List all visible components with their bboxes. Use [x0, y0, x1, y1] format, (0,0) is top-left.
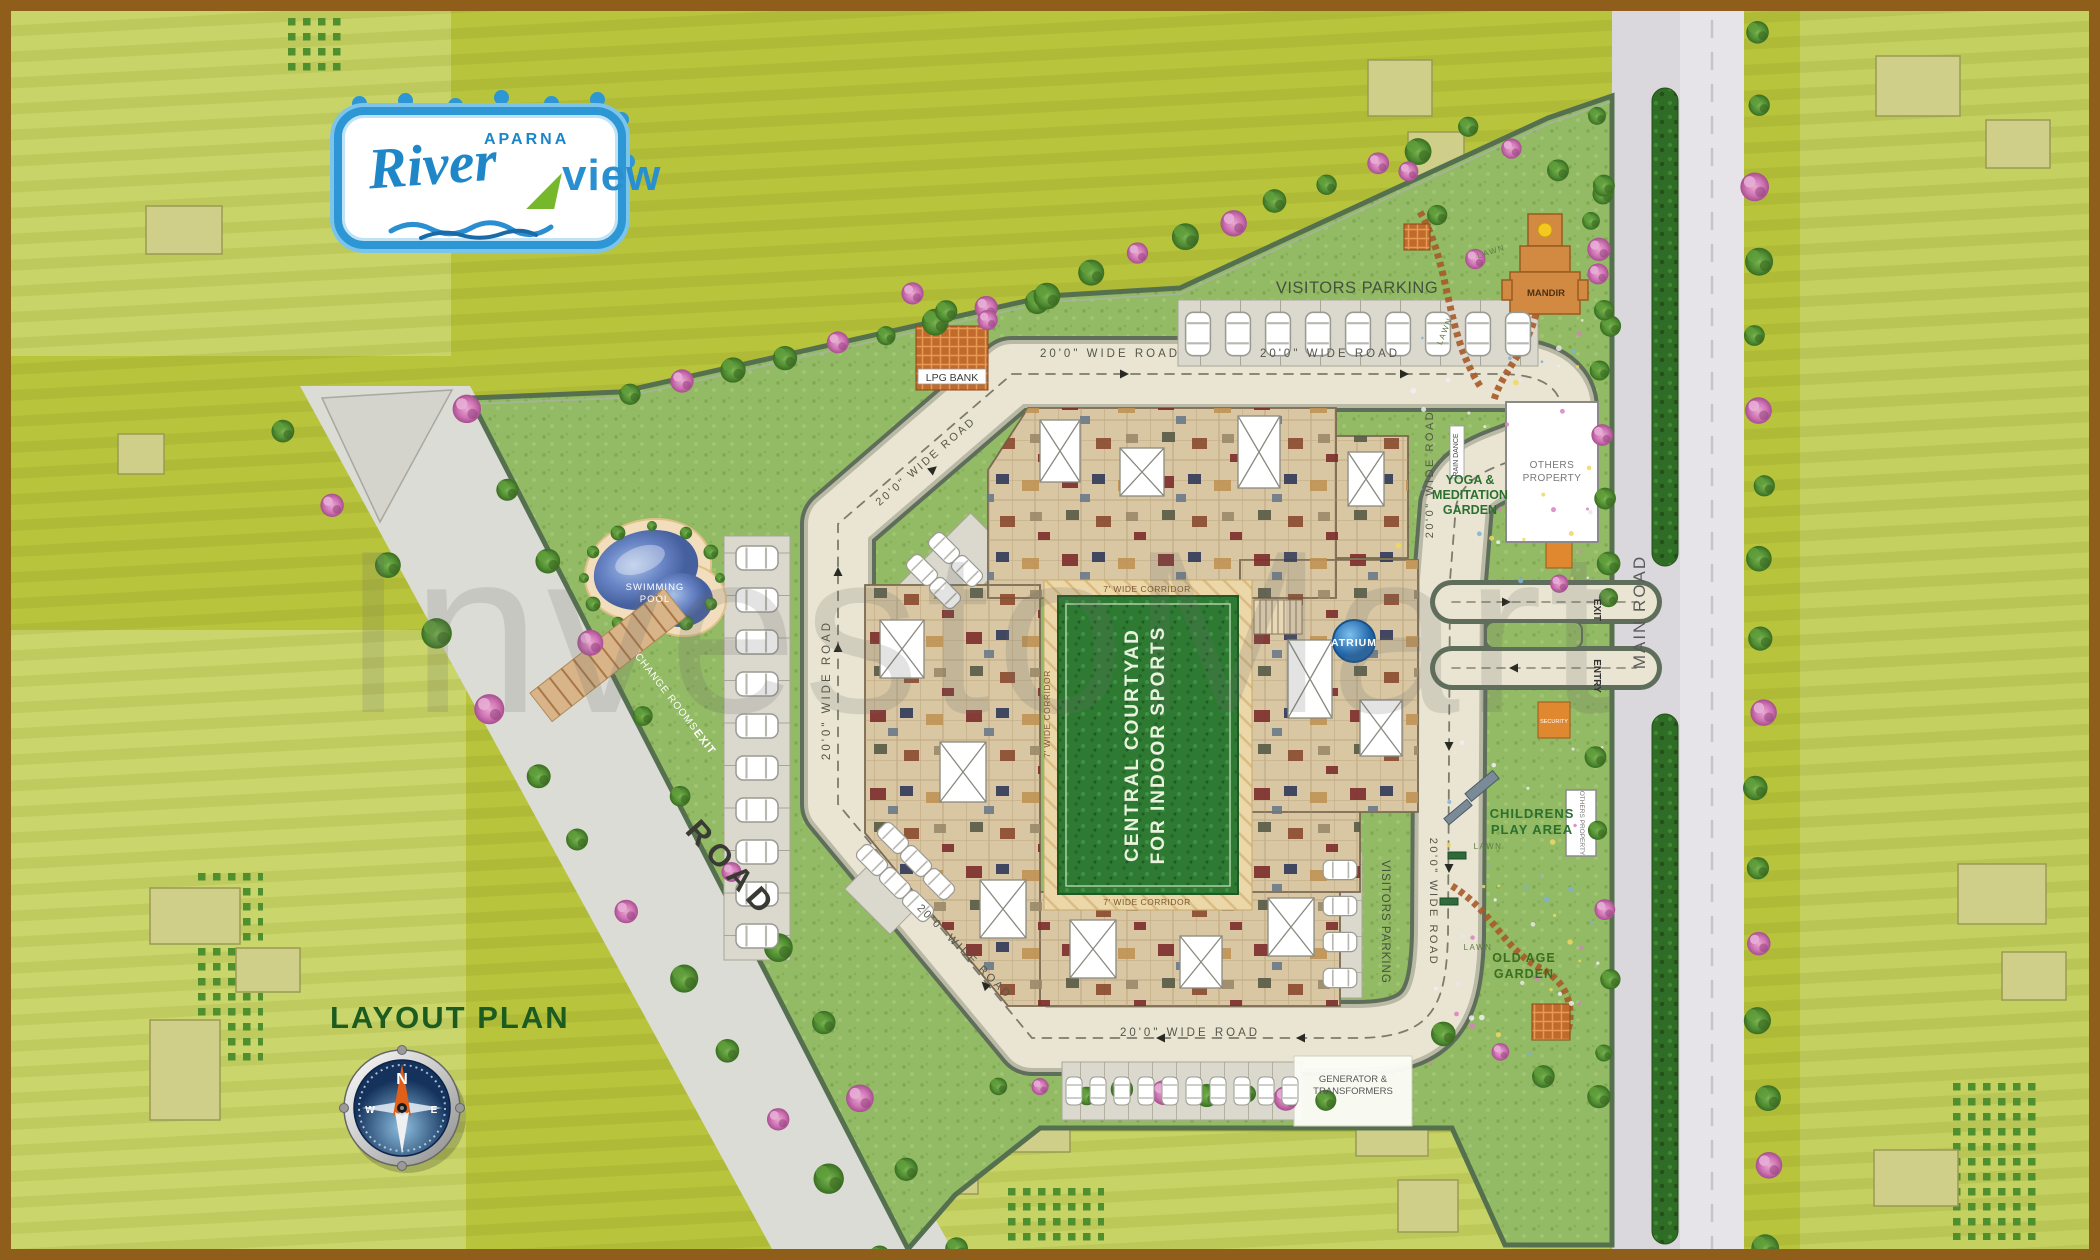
pool-label: SWIMMING: [626, 582, 685, 593]
flower-dot: [1508, 356, 1512, 360]
flower-dot: [1578, 959, 1581, 962]
tree-icon: [814, 1164, 844, 1194]
flowering-tree-icon: [1398, 161, 1418, 181]
orchard-patch: [1008, 1182, 1104, 1248]
flower-dot: [1454, 1012, 1459, 1017]
tree-icon: [1755, 1085, 1781, 1111]
parked-car-icon: [1114, 1077, 1130, 1105]
flower-dot: [1525, 885, 1529, 889]
tree-icon: [496, 479, 518, 501]
lawn-label: LAWN: [1474, 842, 1503, 851]
tree-icon: [1588, 107, 1606, 125]
childrens-play-label: PLAY AREA: [1491, 822, 1573, 837]
flowering-tree-icon: [901, 282, 923, 304]
tree-icon: [566, 828, 588, 850]
median-hedge: [1652, 88, 1678, 566]
flower-dot: [1556, 345, 1562, 351]
flower-dot: [1456, 982, 1461, 987]
flower-dot: [1596, 961, 1599, 964]
parked-car-icon: [736, 924, 778, 948]
courtyard-label: FOR INDOOR SPORTS: [1148, 626, 1169, 865]
flower-dot: [1541, 493, 1545, 497]
flower-dot: [1567, 939, 1572, 944]
tree-icon: [1263, 189, 1287, 213]
tree-icon: [1034, 283, 1061, 310]
watermark-text: InvestoMart: [341, 503, 1619, 762]
parked-car-icon: [1323, 968, 1357, 987]
tree-icon: [773, 346, 797, 370]
atrium-label: ATRIUM: [1331, 637, 1377, 649]
flowering-tree-icon: [1492, 1043, 1510, 1061]
tree-icon: [990, 1078, 1008, 1096]
flower-dot: [1526, 787, 1529, 790]
site-plan-svg: InvestoMart VISITORS PARKING 20'0" WIDE …: [11, 11, 2089, 1249]
parked-car-icon: [1323, 932, 1357, 951]
flowering-tree-icon: [1756, 1152, 1783, 1179]
tree-icon: [1078, 260, 1104, 286]
childrens-play-label: CHILDRENS: [1490, 806, 1575, 821]
flowering-tree-icon: [1740, 173, 1769, 202]
flower-dot: [1549, 988, 1552, 991]
flowering-tree-icon: [670, 369, 693, 392]
old-age-garden-label: GARDEN: [1494, 967, 1554, 981]
corridor-label: 7' WIDE CORRIDOR: [1042, 670, 1052, 758]
tree-icon: [1743, 776, 1768, 801]
flower-dot: [1505, 422, 1509, 426]
flowering-tree-icon: [453, 395, 481, 423]
layout-plan-canvas: InvestoMart VISITORS PARKING 20'0" WIDE …: [0, 0, 2100, 1260]
parked-car-icon: [1210, 1077, 1226, 1105]
parked-car-icon: [1506, 312, 1531, 355]
flower-dot: [1479, 1015, 1485, 1021]
flower-dot: [1541, 360, 1544, 363]
logo-river-text: River: [366, 127, 499, 203]
tree-icon: [670, 786, 691, 807]
tree-icon: [876, 326, 895, 345]
tree-icon: [1747, 857, 1769, 879]
flower-dot: [1557, 365, 1560, 368]
flower-dot: [1560, 409, 1565, 414]
wide-road-label: 20'0" WIDE ROAD: [1424, 410, 1436, 538]
wide-road-label: 20'0" WIDE ROAD: [821, 620, 833, 760]
plan-title: LAYOUT PLAN: [330, 1000, 570, 1035]
tree-icon: [1600, 969, 1620, 989]
tree-icon: [1405, 138, 1432, 165]
tree-icon: [670, 965, 698, 993]
flowering-tree-icon: [1501, 138, 1521, 158]
orchard-patch: [1952, 1080, 2040, 1240]
flower-dot: [1483, 425, 1486, 428]
logo-view-text: view: [562, 151, 661, 201]
flower-dot: [1569, 1001, 1574, 1006]
flowering-tree-icon: [1750, 699, 1776, 725]
flowering-tree-icon: [846, 1084, 874, 1112]
flower-dot: [1573, 824, 1576, 827]
flowering-tree-icon: [1220, 210, 1246, 236]
flowering-tree-icon: [1031, 1078, 1048, 1095]
parked-car-icon: [1258, 1077, 1274, 1105]
flower-dot: [1497, 885, 1500, 888]
flower-dot: [1550, 839, 1556, 845]
mandir-dome: [1538, 223, 1552, 237]
wide-road-label: 20'0" WIDE ROAD: [1260, 348, 1400, 360]
flower-dot: [1544, 897, 1550, 903]
tree-icon: [1316, 175, 1336, 195]
tree-icon: [1547, 159, 1569, 181]
courtyard-label: CENTRAL COURTYAD: [1122, 628, 1143, 862]
mandir-label: MANDIR: [1527, 288, 1565, 299]
logo-waves-icon: [386, 215, 576, 241]
flowering-tree-icon: [1367, 152, 1389, 174]
project-logo: APARNA River view: [334, 107, 626, 249]
tree-icon: [1754, 475, 1775, 496]
others-property-label: OTHERS: [1530, 460, 1575, 471]
tree-icon: [895, 1158, 918, 1181]
yoga-garden-label: MEDITATION: [1432, 488, 1508, 502]
parked-car-icon: [736, 798, 778, 822]
flower-dot: [1470, 1023, 1476, 1029]
flower-dot: [1469, 1015, 1474, 1020]
flower-dot: [1539, 875, 1542, 878]
flowering-tree-icon: [1594, 899, 1615, 920]
tree-icon: [1172, 223, 1199, 250]
wide-road-label: 20'0" WIDE ROAD: [1120, 1027, 1260, 1039]
flower-dot: [1579, 946, 1583, 950]
generator-label: TRANSFORMERS: [1313, 1086, 1393, 1097]
flower-dot: [1446, 378, 1451, 383]
flower-dot: [1461, 933, 1465, 937]
flower-dot: [1434, 987, 1438, 991]
flower-dot: [1576, 365, 1579, 368]
parked-car-icon: [1186, 1077, 1202, 1105]
parked-car-icon: [1323, 896, 1357, 915]
flowering-tree-icon: [1587, 238, 1610, 261]
flower-dot: [1572, 349, 1576, 353]
flower-dot: [1558, 992, 1562, 996]
flower-dot: [1568, 886, 1573, 891]
flower-dot: [1421, 337, 1424, 340]
flower-dot: [1581, 319, 1584, 322]
flower-dot: [1520, 981, 1524, 985]
yoga-garden-label: GARDEN: [1443, 503, 1497, 517]
flower-dot: [1487, 865, 1490, 868]
flower-dot: [1553, 914, 1556, 917]
tree-icon: [619, 384, 640, 405]
parked-car-icon: [1282, 1077, 1298, 1105]
exit-label: EXIT: [1591, 599, 1602, 621]
parked-car-icon: [1162, 1077, 1178, 1105]
tree-icon: [1746, 21, 1769, 44]
tree-icon: [272, 420, 295, 443]
compass-e-label: E: [431, 1105, 438, 1116]
tree-icon: [1593, 175, 1615, 197]
flower-dot: [1587, 466, 1592, 471]
parked-car-icon: [1066, 1077, 1082, 1105]
flower-dot: [1513, 380, 1519, 386]
flowering-tree-icon: [1591, 424, 1613, 446]
flowering-tree-icon: [977, 310, 997, 330]
tree-icon: [1590, 361, 1610, 381]
flower-dot: [1577, 332, 1582, 337]
flower-dot: [1590, 921, 1594, 925]
flower-dot: [1493, 380, 1496, 383]
security-label: SECURITY: [1540, 719, 1568, 725]
entry-label: ENTRY: [1591, 659, 1602, 693]
parked-car-icon: [1323, 860, 1357, 879]
yoga-garden-label: YOGA &: [1446, 473, 1495, 487]
flowering-tree-icon: [1127, 242, 1148, 263]
flower-dot: [1528, 1052, 1531, 1055]
orchard-patch: [286, 12, 348, 76]
compass-n-label: N: [396, 1071, 408, 1088]
tree-icon: [1744, 325, 1765, 346]
flower-dot: [1496, 1032, 1501, 1037]
pool-label: POOL: [640, 594, 670, 605]
tree-icon: [720, 357, 745, 382]
visitors-parking-label: VISITORS PARKING: [1276, 279, 1438, 297]
flower-dot: [1518, 379, 1522, 383]
flower-dot: [1482, 885, 1485, 888]
flowering-tree-icon: [1587, 263, 1608, 284]
tree-icon: [1458, 117, 1478, 137]
parked-car-icon: [1090, 1077, 1106, 1105]
flower-dot: [1420, 488, 1422, 490]
tree-icon: [1582, 212, 1600, 230]
lawn-label: LAWN: [1464, 943, 1493, 952]
flowering-tree-icon: [767, 1108, 789, 1130]
parked-car-icon: [1138, 1077, 1154, 1105]
parked-car-icon: [1226, 312, 1251, 355]
flowering-tree-icon: [827, 331, 849, 353]
flower-dot: [1410, 388, 1416, 394]
corridor-label: 7' WIDE CORRIDOR: [1103, 897, 1191, 907]
rain-dance-label: RAIN DANCE: [1453, 433, 1460, 477]
tree-icon: [1744, 1007, 1771, 1034]
tree-icon: [1588, 821, 1607, 840]
flower-dot: [1447, 800, 1451, 804]
wide-road-label: 20'0" WIDE ROAD: [1427, 838, 1439, 966]
flower-dot: [1470, 935, 1474, 939]
tree-icon: [812, 1011, 835, 1034]
flowering-tree-icon: [614, 900, 638, 924]
flower-dot: [1491, 763, 1496, 768]
flower-dot: [1531, 922, 1536, 927]
flowering-tree-icon: [1745, 397, 1772, 424]
tree-icon: [1749, 95, 1770, 116]
tree-icon: [1746, 546, 1772, 572]
tree-icon: [1587, 1085, 1610, 1108]
tree-icon: [935, 300, 957, 322]
flowering-tree-icon: [1747, 932, 1770, 955]
flower-dot: [1578, 1002, 1581, 1005]
flower-dot: [1494, 898, 1497, 901]
median-hedge: [1652, 714, 1678, 1244]
parked-car-icon: [1234, 1077, 1250, 1105]
tree-icon: [1427, 205, 1447, 225]
visitors-parking-label: VISITORS PARKING: [1379, 860, 1391, 984]
main-road-label: MAIN ROAD: [1630, 555, 1649, 669]
tree-icon: [527, 764, 551, 788]
tree-icon: [1748, 626, 1772, 650]
old-age-pergola: [1532, 1004, 1570, 1040]
compass-w-label: W: [365, 1105, 375, 1116]
tree-icon: [1532, 1065, 1555, 1088]
flower-dot: [1446, 843, 1451, 848]
flower-dot: [1428, 1061, 1431, 1064]
tree-icon: [1745, 248, 1773, 276]
others-property-label: OTHERS PROPERTY: [1578, 791, 1585, 856]
tree-icon: [716, 1039, 740, 1063]
garden-pergola: [1404, 224, 1430, 250]
parked-car-icon: [1186, 312, 1211, 355]
lpg-bank-label: LPG BANK: [926, 372, 979, 384]
logo-brand-text: APARNA: [484, 131, 569, 149]
tree-icon: [1594, 300, 1614, 320]
old-age-garden-label: OLD AGE: [1492, 951, 1555, 965]
generator-label: GENERATOR &: [1319, 1074, 1388, 1085]
tree-icon: [1595, 1044, 1612, 1061]
others-property-label: PROPERTY: [1523, 473, 1582, 484]
corridor-label: 7' WIDE CORRIDOR: [1103, 584, 1191, 594]
wide-road-label: 20'0" WIDE ROAD: [1040, 348, 1180, 360]
tree-icon: [1431, 1022, 1456, 1047]
flower-dot: [1467, 411, 1470, 414]
parked-car-icon: [1466, 312, 1491, 355]
